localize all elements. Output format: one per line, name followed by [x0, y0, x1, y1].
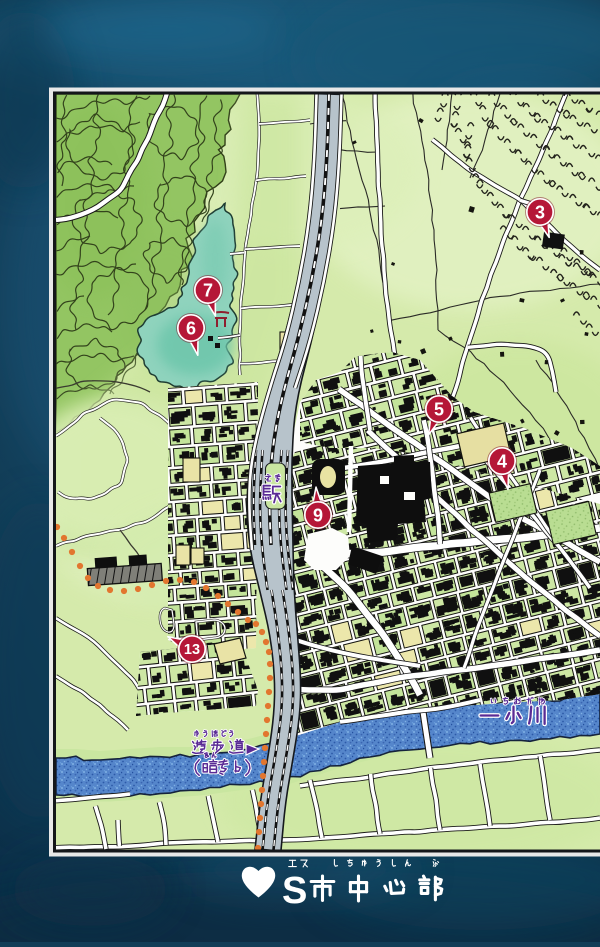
svg-text:7: 7 — [203, 280, 213, 300]
svg-text:4: 4 — [497, 451, 507, 471]
svg-text:13: 13 — [184, 642, 200, 658]
svg-text:5: 5 — [434, 399, 444, 419]
svg-text:S: S — [282, 870, 307, 912]
svg-text:9: 9 — [313, 505, 323, 525]
svg-text:6: 6 — [186, 318, 196, 338]
svg-text:3: 3 — [535, 202, 545, 222]
